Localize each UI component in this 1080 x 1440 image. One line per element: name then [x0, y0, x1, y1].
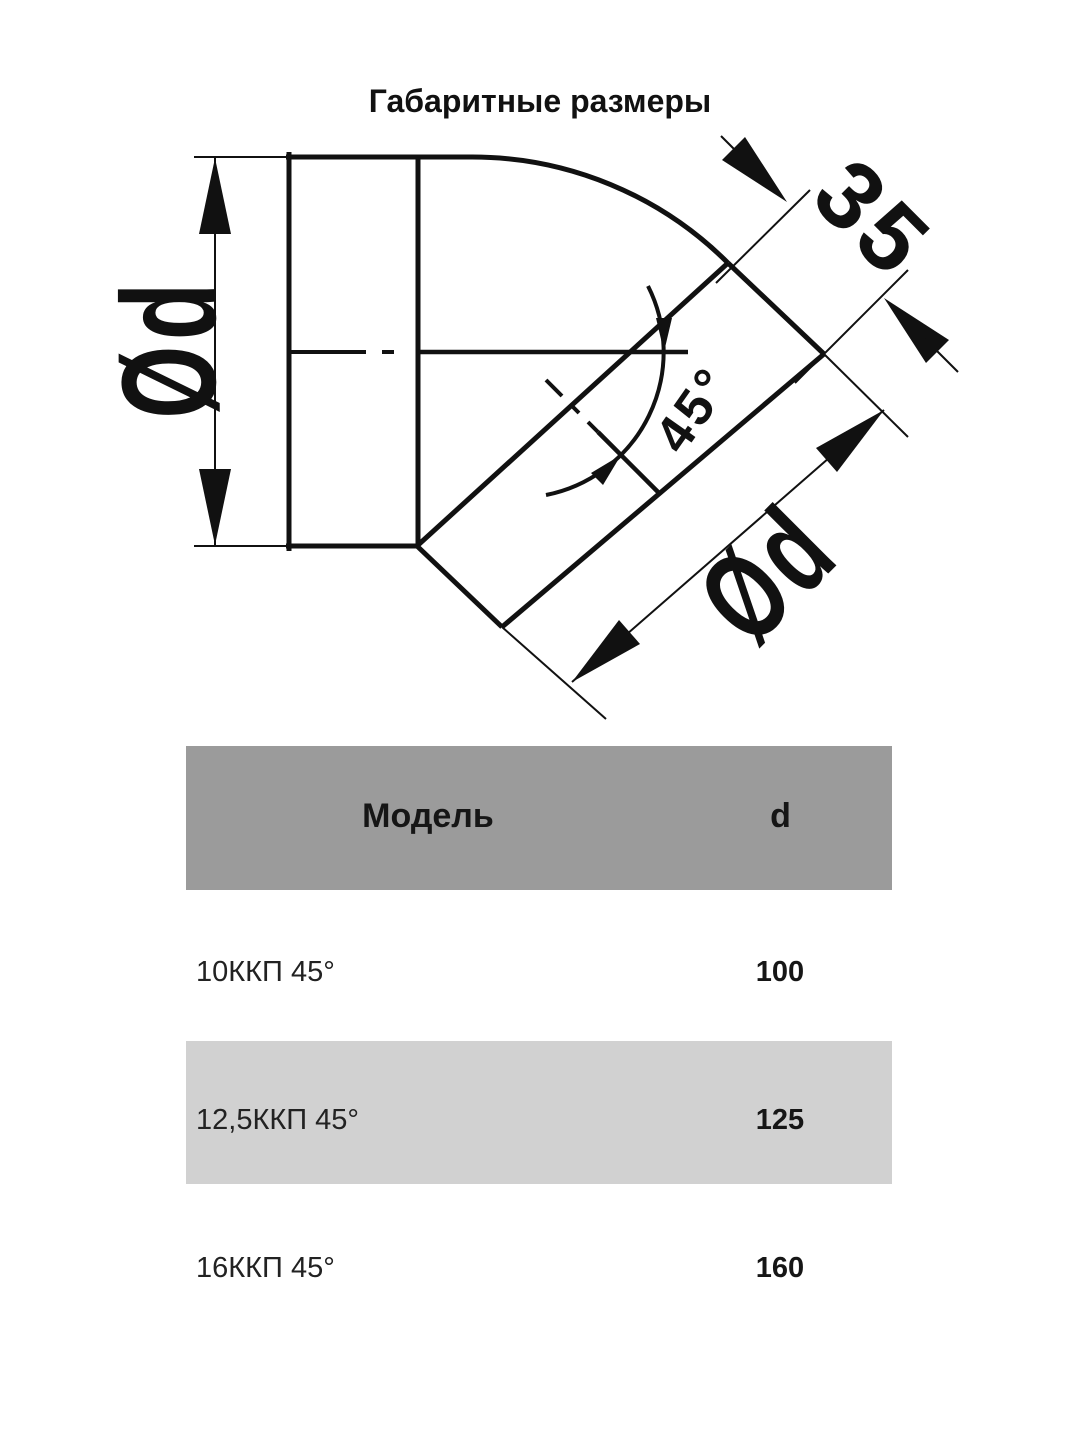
svg-text:Ød: Ød — [672, 478, 862, 668]
svg-text:35: 35 — [793, 139, 953, 299]
svg-text:45°: 45° — [644, 356, 744, 464]
svg-text:Ød: Ød — [93, 277, 244, 418]
